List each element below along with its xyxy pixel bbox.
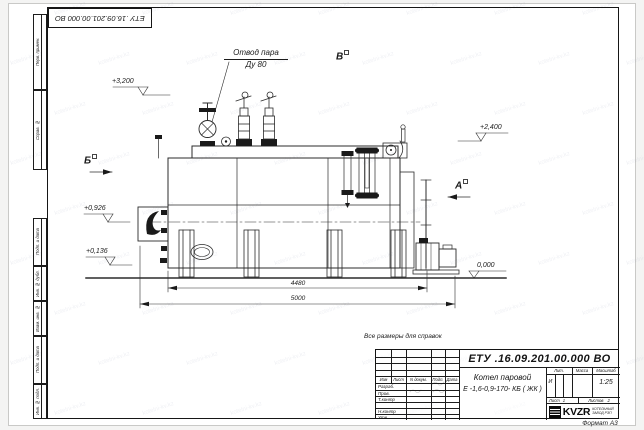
steam-outlet-line1: Отвод пара xyxy=(224,48,288,60)
lit-value: И xyxy=(546,376,555,388)
col-data: Дата xyxy=(445,376,459,383)
elevation-3200: +3,200 xyxy=(112,78,134,85)
row-utv: Утв. xyxy=(378,415,388,420)
scale-label: Масштаб xyxy=(592,367,620,374)
elevation-0136: +0,136 xyxy=(86,248,108,255)
lit-label: Лит. xyxy=(546,367,572,374)
company-cell: KVZR КОТЕЛЬНЫЙ ЗАВОД РЭП xyxy=(546,403,620,420)
row-nkontr: Н.контр xyxy=(378,409,396,414)
scale-value: 1:25 xyxy=(592,376,620,388)
section-label-a: А xyxy=(455,179,468,191)
mass-label: Масса xyxy=(572,367,592,374)
kvzr-logo-icon xyxy=(549,406,561,418)
title-doc-number: ЕТУ .16.09.201.00.000 ВО xyxy=(459,350,620,367)
title-block: Изм Лист N докум. Подп. Дата Разраб. Про… xyxy=(375,349,619,419)
steam-outlet-line2: Ду 80 xyxy=(224,60,288,71)
sheet-value: 1 xyxy=(563,398,565,403)
format-label: Формат А3 xyxy=(560,420,640,427)
sheets-label: Листов xyxy=(588,398,603,403)
col-podp: Подп. xyxy=(431,376,445,383)
company-name: КОТЕЛЬНЫЙ ЗАВОД РЭП xyxy=(592,408,617,416)
col-list: Лист xyxy=(391,376,406,383)
elevation-0000: 0,000 xyxy=(477,262,495,269)
row-razrab: Разраб. xyxy=(378,384,394,389)
section-label-b: Б xyxy=(84,154,97,166)
logo-text: KVZR xyxy=(563,406,590,418)
sheet-label: Лист xyxy=(549,398,560,403)
row-prov: Пров. xyxy=(378,391,390,396)
row-tkontr: Т.контр xyxy=(378,397,395,402)
elevation-0926: +0,926 xyxy=(84,205,106,212)
dimension-4480: 4480 xyxy=(268,280,328,287)
product-name-line2: Е -1,6-0,9-170- КБ ( ЖК ) xyxy=(459,383,546,395)
sheets-value: 2 xyxy=(607,398,609,403)
col-izm: Изм xyxy=(376,376,391,383)
dimension-5000: 5000 xyxy=(268,295,328,302)
drawing-sheet: kotelni-kv.kzkotelni-kv.kzkotelni-kv.kzk… xyxy=(0,0,644,430)
col-doc: N докум. xyxy=(406,376,431,383)
reference-note: Все размеры для справок xyxy=(364,333,442,340)
section-label-v: В xyxy=(336,50,349,62)
steam-outlet-label: Отвод пара Ду 80 xyxy=(224,48,288,71)
elevation-2400: +2,400 xyxy=(480,124,502,131)
